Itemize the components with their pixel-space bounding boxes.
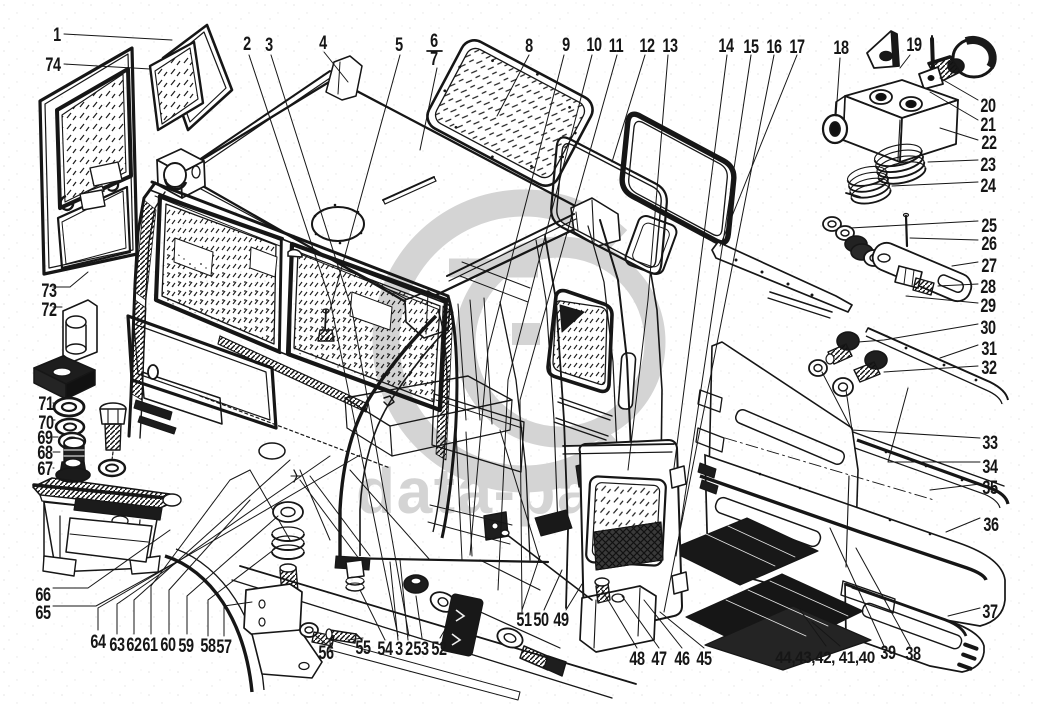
svg-text:12: 12 — [639, 35, 654, 56]
svg-text:59: 59 — [178, 635, 193, 656]
svg-text:56: 56 — [318, 642, 333, 663]
svg-text:11: 11 — [609, 35, 624, 56]
svg-text:71: 71 — [38, 393, 53, 414]
svg-text:73: 73 — [41, 280, 56, 301]
svg-text:38: 38 — [905, 643, 920, 664]
svg-text:1: 1 — [53, 24, 61, 45]
svg-text:4: 4 — [319, 32, 328, 53]
svg-text:70: 70 — [38, 412, 53, 433]
svg-text:14: 14 — [718, 35, 734, 56]
svg-text:32: 32 — [981, 357, 996, 378]
svg-text:24: 24 — [980, 175, 996, 196]
svg-text:45: 45 — [696, 648, 711, 669]
svg-text:2: 2 — [243, 33, 251, 54]
svg-text:13: 13 — [662, 35, 677, 56]
svg-text:63: 63 — [109, 634, 124, 655]
svg-text:3: 3 — [265, 34, 273, 55]
svg-text:27: 27 — [981, 255, 996, 276]
svg-text:10: 10 — [586, 34, 601, 55]
svg-text:48: 48 — [629, 648, 644, 669]
svg-text:19: 19 — [906, 34, 921, 55]
svg-text:33: 33 — [982, 432, 997, 453]
svg-text:47: 47 — [651, 648, 666, 669]
svg-text:52: 52 — [431, 638, 446, 659]
svg-text:46: 46 — [674, 648, 689, 669]
svg-text:57: 57 — [216, 636, 231, 657]
svg-text:35: 35 — [982, 477, 997, 498]
svg-text:29: 29 — [980, 295, 995, 316]
svg-text:8: 8 — [525, 35, 533, 56]
svg-text:53: 53 — [413, 638, 428, 659]
svg-text:7: 7 — [430, 48, 438, 69]
svg-text:17: 17 — [789, 36, 804, 57]
svg-text:23: 23 — [980, 154, 995, 175]
svg-text:64: 64 — [90, 631, 106, 652]
svg-text:34: 34 — [982, 456, 998, 477]
svg-text:2: 2 — [405, 638, 413, 659]
svg-text:15: 15 — [743, 36, 758, 57]
svg-text:37: 37 — [982, 601, 997, 622]
svg-text:72: 72 — [41, 299, 56, 320]
svg-text:61: 61 — [142, 634, 157, 655]
svg-text:9: 9 — [562, 34, 570, 55]
svg-text:39: 39 — [880, 642, 895, 663]
svg-text:30: 30 — [980, 317, 995, 338]
svg-text:60: 60 — [160, 634, 175, 655]
svg-text:44,43,42, 41,40: 44,43,42, 41,40 — [775, 648, 875, 667]
svg-text:51: 51 — [516, 609, 531, 630]
svg-text:18: 18 — [833, 37, 848, 58]
svg-text:3: 3 — [395, 638, 403, 659]
svg-text:62: 62 — [126, 634, 141, 655]
svg-text:50: 50 — [533, 609, 548, 630]
svg-text:22: 22 — [981, 132, 996, 153]
svg-text:5: 5 — [395, 34, 403, 55]
svg-text:74: 74 — [45, 54, 61, 75]
svg-text:49: 49 — [553, 609, 568, 630]
svg-text:54: 54 — [377, 638, 393, 659]
svg-text:36: 36 — [983, 514, 998, 535]
svg-text:55: 55 — [355, 637, 370, 658]
svg-text:66: 66 — [35, 584, 50, 605]
svg-text:58: 58 — [200, 635, 215, 656]
svg-text:26: 26 — [981, 233, 996, 254]
svg-text:16: 16 — [766, 36, 781, 57]
